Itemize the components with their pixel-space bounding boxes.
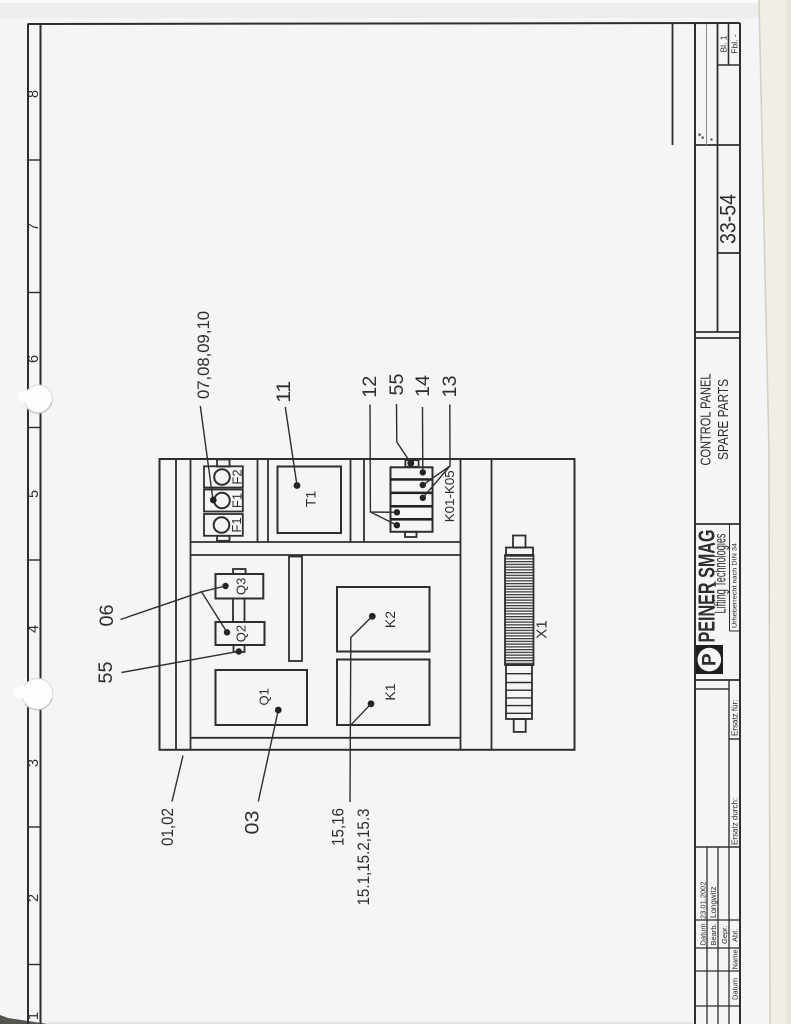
svg-text:4: 4 bbox=[26, 625, 42, 633]
svg-text:Gepr.: Gepr. bbox=[720, 926, 729, 944]
svg-text:F1: F1 bbox=[229, 493, 244, 508]
svg-text:X1: X1 bbox=[534, 620, 551, 638]
svg-text:7: 7 bbox=[26, 223, 42, 231]
svg-text:Q3: Q3 bbox=[233, 578, 248, 595]
svg-text:12: 12 bbox=[360, 376, 381, 398]
svg-text:F1: F1 bbox=[229, 517, 244, 532]
svg-text:K2: K2 bbox=[382, 611, 398, 628]
svg-text:07,08,09,10: 07,08,09,10 bbox=[194, 311, 213, 399]
svg-text:P: P bbox=[700, 653, 721, 666]
svg-text:15.1,15.2,15.3: 15.1,15.2,15.3 bbox=[354, 809, 373, 906]
svg-text:1: 1 bbox=[26, 1012, 42, 1020]
svg-text:15,16: 15,16 bbox=[329, 808, 348, 846]
svg-text:Longwitz: Longwitz bbox=[709, 886, 718, 918]
svg-text:6: 6 bbox=[26, 355, 42, 363]
svg-text:SPARE PARTS: SPARE PARTS bbox=[716, 379, 732, 460]
svg-text:Q1: Q1 bbox=[257, 688, 272, 705]
svg-text:T1: T1 bbox=[303, 491, 319, 508]
svg-text:CONTROL PANEL: CONTROL PANEL bbox=[699, 374, 715, 466]
svg-text:55: 55 bbox=[96, 662, 117, 684]
svg-text:F2: F2 bbox=[229, 469, 244, 484]
svg-text:06: 06 bbox=[97, 605, 118, 627]
svg-text:Datum: Datum bbox=[731, 978, 740, 1000]
svg-text:33-54: 33-54 bbox=[716, 194, 741, 244]
svg-text:Datum: Datum bbox=[698, 923, 707, 945]
svg-text:Fbl. -: Fbl. - bbox=[730, 34, 740, 54]
svg-text:03: 03 bbox=[243, 811, 264, 835]
svg-text:Name: Name bbox=[731, 949, 740, 969]
svg-text:Bearb.: Bearb. bbox=[709, 923, 718, 945]
svg-text:14: 14 bbox=[413, 375, 434, 397]
svg-text:23.01.2002: 23.01.2002 bbox=[698, 881, 707, 919]
svg-text:13: 13 bbox=[440, 376, 461, 398]
svg-text:Urheberrecht nach DIN 34: Urheberrecht nach DIN 34 bbox=[731, 543, 738, 628]
svg-text:Abt.: Abt. bbox=[731, 929, 740, 942]
svg-text:3: 3 bbox=[26, 759, 42, 767]
svg-text:K1: K1 bbox=[382, 683, 398, 700]
svg-text:Ersatz für:: Ersatz für: bbox=[731, 700, 740, 736]
svg-text:Q2: Q2 bbox=[233, 625, 248, 642]
svg-text:2: 2 bbox=[26, 894, 42, 902]
svg-text:5: 5 bbox=[26, 490, 42, 498]
svg-text:Bl. 1: Bl. 1 bbox=[719, 35, 729, 52]
svg-text:Lifting Technologies: Lifting Technologies bbox=[713, 534, 730, 614]
svg-text:K01-K05: K01-K05 bbox=[442, 470, 457, 522]
svg-text:55: 55 bbox=[387, 374, 408, 396]
svg-text:Ersatz durch:: Ersatz durch: bbox=[731, 798, 740, 845]
svg-text:01,02: 01,02 bbox=[158, 808, 177, 846]
svg-text:8: 8 bbox=[26, 90, 42, 98]
svg-text:11: 11 bbox=[274, 381, 295, 403]
